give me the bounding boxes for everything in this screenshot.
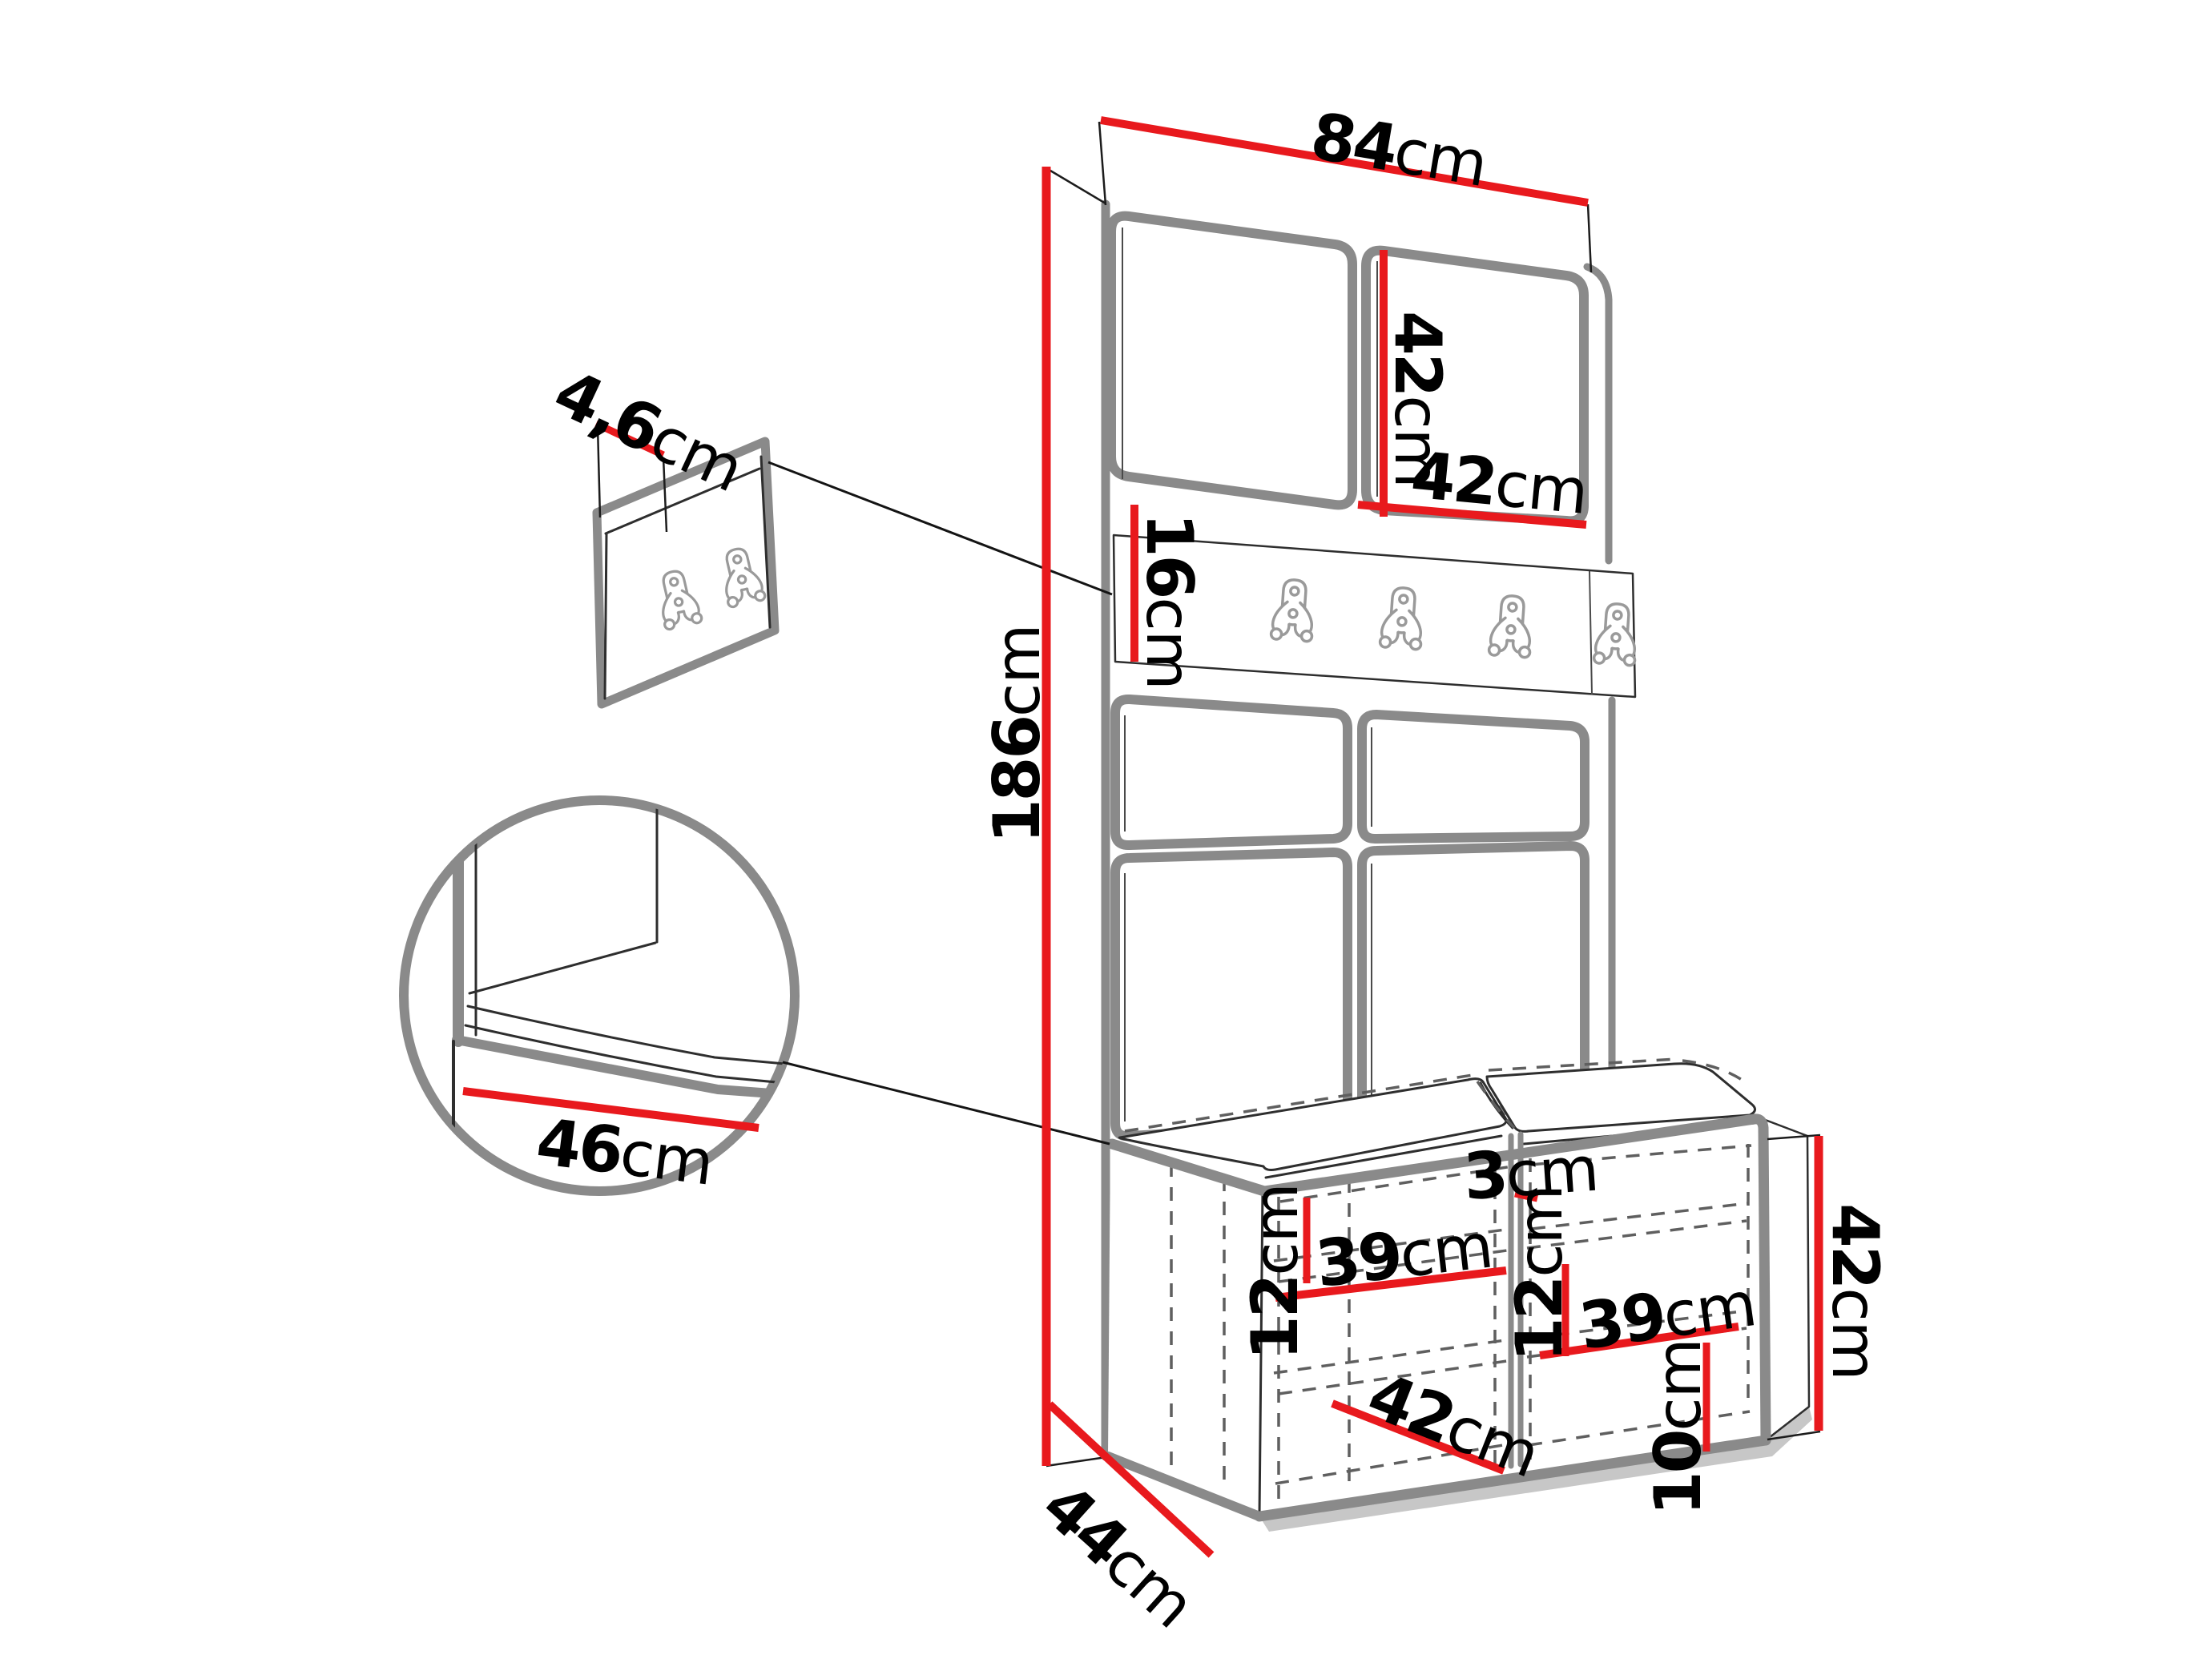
panel-row1-right [1362,715,1585,839]
panel-row1-left [1115,699,1348,845]
diagram-canvas: 84cm 42cm 42cm 16cm 186cm 4,6cm 46cm 44c… [0,0,2212,1659]
door-left [1111,216,1352,505]
upholstered-panels [1115,699,1585,1136]
dim-label-left-shelf-spacing: 12cm [1238,1183,1312,1360]
dim-label-plinth-height: 10cm [1641,1339,1715,1516]
dim-label-total-height: 186cm [980,625,1054,844]
dim-label-bench-height: 42cm [1818,1203,1892,1380]
dim-label-hook-rail-height: 16cm [1132,513,1207,690]
dim-label-right-shelf-spacing: 12cm [1502,1185,1577,1362]
panel-row2-left [1115,852,1348,1136]
